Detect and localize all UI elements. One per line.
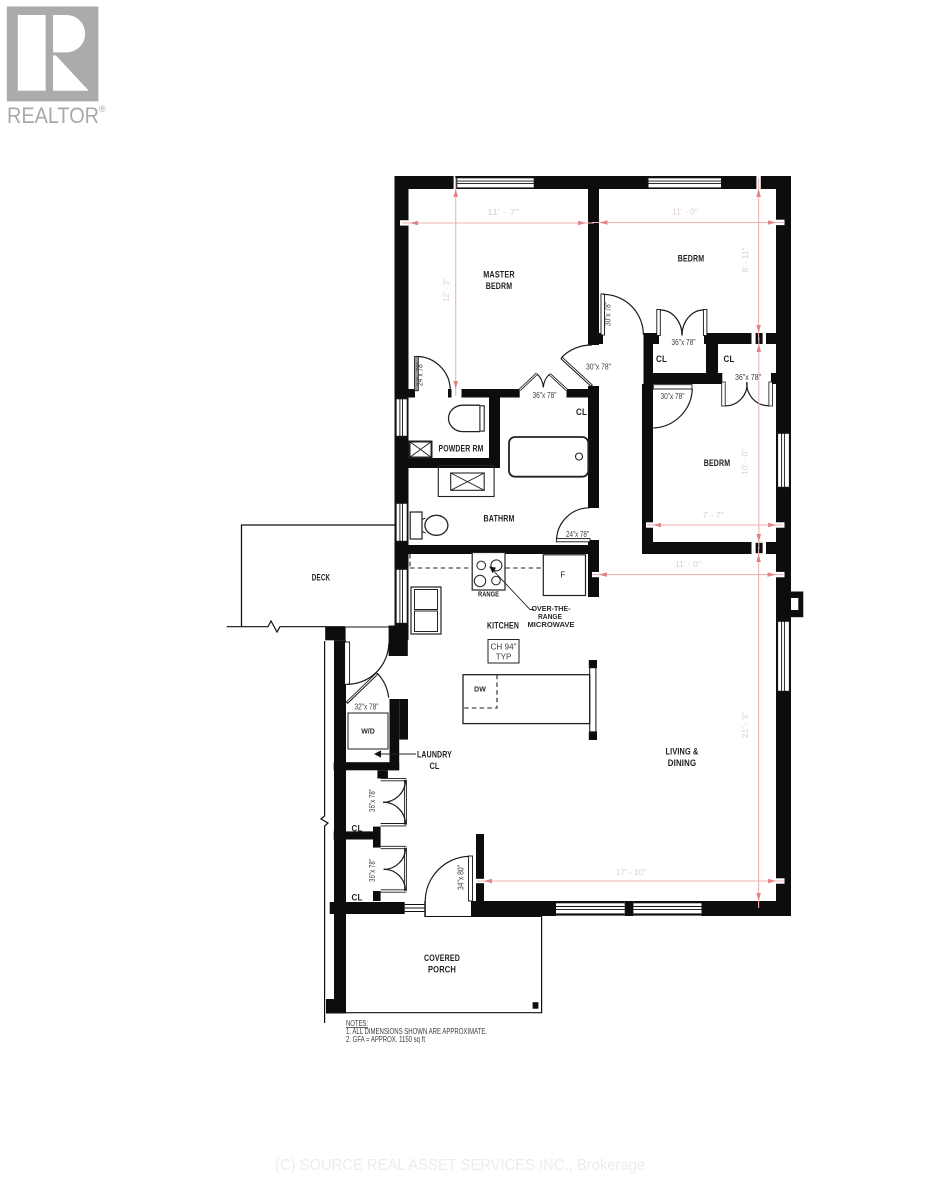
svg-text:MASTER: MASTER: [483, 270, 515, 281]
svg-text:8' - 11": 8' - 11": [740, 248, 750, 273]
svg-text:36"x 78": 36"x 78": [672, 338, 696, 347]
svg-text:F: F: [560, 571, 565, 580]
svg-text:36"x 78": 36"x 78": [368, 859, 377, 882]
svg-text:30"x 78": 30"x 78": [586, 363, 611, 372]
svg-text:BEDRM: BEDRM: [704, 458, 731, 469]
svg-text:PORCH: PORCH: [428, 965, 456, 976]
svg-text:10' - 0": 10' - 0": [740, 449, 750, 475]
svg-text:REALTOR: REALTOR: [7, 103, 99, 128]
svg-text:LAUNDRY: LAUNDRY: [417, 750, 452, 761]
svg-text:CL: CL: [656, 354, 667, 365]
svg-text:DECK: DECK: [312, 573, 331, 584]
svg-text:CH 94": CH 94": [491, 643, 517, 652]
svg-text:CL: CL: [724, 354, 735, 365]
svg-text:MICROWAVE: MICROWAVE: [528, 622, 575, 629]
svg-text:7' - 7": 7' - 7": [703, 510, 724, 520]
svg-text:DW: DW: [474, 687, 486, 694]
svg-text:BATHRM: BATHRM: [484, 514, 515, 525]
svg-text:24"x 78": 24"x 78": [416, 362, 425, 386]
svg-text:CL: CL: [576, 407, 587, 418]
svg-text:®: ®: [99, 104, 106, 114]
svg-text:CL: CL: [352, 893, 363, 904]
svg-text:KITCHEN: KITCHEN: [487, 621, 519, 632]
svg-text:LIVING &: LIVING &: [666, 747, 699, 758]
svg-text:(C) SOURCE REAL ASSET SERVICES: (C) SOURCE REAL ASSET SERVICES INC., Bro…: [275, 1157, 645, 1174]
svg-text:24"x 78": 24"x 78": [566, 530, 589, 539]
svg-text:2. GFA = APPROX. 1150 sq ft: 2. GFA = APPROX. 1150 sq ft: [346, 1035, 426, 1044]
svg-text:36"x 78": 36"x 78": [368, 789, 377, 812]
svg-text:11' - 7": 11' - 7": [487, 207, 519, 217]
svg-text:RANGE: RANGE: [478, 592, 499, 599]
svg-text:30"x 78": 30"x 78": [604, 302, 613, 326]
svg-text:BEDRM: BEDRM: [678, 254, 705, 265]
svg-text:CL: CL: [430, 761, 440, 772]
svg-text:W/D: W/D: [361, 729, 375, 736]
svg-text:11' - 0": 11' - 0": [675, 559, 701, 569]
svg-text:12' - 3": 12' - 3": [441, 279, 451, 302]
svg-text:DINING: DINING: [668, 758, 697, 769]
svg-text:CL: CL: [352, 824, 363, 835]
svg-text:34"x 80": 34"x 80": [457, 865, 466, 890]
svg-text:OVER-THE-: OVER-THE-: [532, 606, 572, 613]
svg-text:17' - 10": 17' - 10": [616, 867, 646, 877]
svg-text:TYP: TYP: [496, 653, 512, 662]
svg-text:11' - 0": 11' - 0": [672, 207, 698, 217]
svg-text:32"x 78": 32"x 78": [355, 703, 379, 712]
svg-text:21' - 3": 21' - 3": [740, 712, 750, 738]
svg-text:RANGE: RANGE: [538, 614, 562, 621]
svg-text:36"x 78": 36"x 78": [533, 391, 557, 400]
svg-text:BEDRM: BEDRM: [486, 281, 513, 292]
svg-text:36"x 78": 36"x 78": [735, 373, 761, 382]
svg-text:POWDER RM: POWDER RM: [439, 444, 484, 455]
svg-text:COVERED: COVERED: [424, 953, 460, 964]
svg-text:30"x 78": 30"x 78": [661, 392, 685, 401]
